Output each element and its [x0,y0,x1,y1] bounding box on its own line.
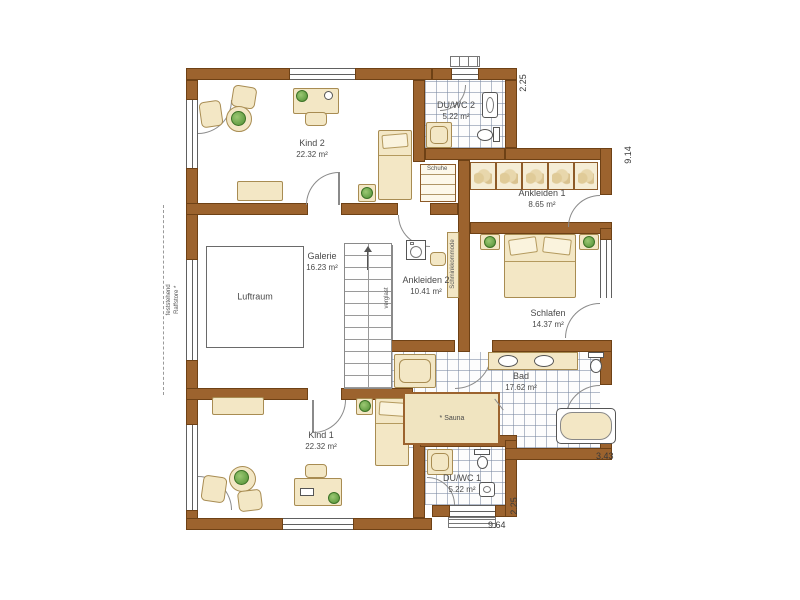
schminkkommode-label: Schminkkommode [450,234,456,294]
blanket-fold [379,155,411,156]
dimension-bottom-side: 2.25 [509,491,519,521]
basin-bowl [483,486,491,493]
dimension-top-right: 2.25 [518,68,528,98]
plant-icon [484,236,496,248]
pillow-icon [542,236,572,255]
room-label-galerie: Galerie16.23 m² [306,251,338,273]
wall-segment [355,68,432,80]
wardrobe-icon [470,162,496,190]
washing-machine-icon [406,240,426,260]
wall-segment [600,148,612,195]
wall-segment [413,80,425,162]
door-leaf [338,172,340,205]
room-label-ankleiden1: Ankleiden 18.65 m² [518,188,565,210]
room-label-ankleiden2: Ankleiden 210.41 m² [402,275,449,297]
wardrobe-icon [548,162,574,190]
raffstore-note: feststehend Raffstore * [166,245,182,355]
shower-tray [399,359,431,383]
dimension-right: 9.14 [623,140,633,170]
plant-icon [234,470,249,485]
room-label-luftraum: Luftraum [237,292,273,303]
stair-glazing-label: verglast [384,273,390,323]
shower-icon [427,449,453,475]
wall-segment [430,203,458,215]
window [290,68,355,80]
room-label-bad: Bad17.62 m² [505,371,537,393]
wm-drum [410,246,422,258]
wardrobe-icon [522,162,548,190]
plant-icon [361,187,373,199]
wm-knobs [410,242,414,245]
wall-segment [492,340,612,352]
window [600,240,612,298]
toilet-icon [477,129,493,141]
pillow-icon [508,236,538,256]
plant-icon [328,492,340,504]
door-swing [313,400,346,433]
basin-bowl [486,97,494,113]
sauna-label: * Sauna [440,415,465,423]
exterior-steps [450,56,480,67]
toilet-tank [588,352,604,358]
toilet-icon [477,456,488,469]
room-label-duwc2: DU/WC 25.22 m² [437,100,475,122]
wardrobe-icon [496,162,522,190]
wall-segment [432,68,452,80]
sideboard-icon [212,397,264,415]
washbasin-icon [482,92,498,118]
toilet-icon [590,359,602,373]
bathtub-icon [556,408,616,444]
balcony-door-glazing [186,100,198,168]
wall-segment [186,518,283,530]
balcony-door-glazing [186,425,198,510]
door-swing [568,195,600,227]
washbasin-icon [479,482,495,497]
washbasin-icon [498,355,518,367]
plant-icon [359,400,371,412]
keyboard-icon [300,488,314,496]
wall-segment [425,148,505,160]
window [452,68,478,80]
room-label-kind2: Kind 222.32 m² [296,138,328,160]
toilet-tank [493,127,500,142]
stair-center-line [368,244,369,388]
plant-icon [296,90,308,102]
dimension-bottom: 9.64 [488,520,506,530]
room-label-schlafen: Schlafen14.37 m² [530,308,565,330]
wall-segment [385,340,455,352]
desk-lamp-icon [324,91,333,100]
wall-segment [341,203,398,215]
roof-overhang-dashed-line [163,205,164,395]
bed-icon [378,130,412,200]
wall-segment [458,160,470,352]
wall-segment [432,505,450,517]
plant-icon [231,111,246,126]
shower-tray [431,453,449,471]
stair-railing [391,245,393,340]
pillow-icon [379,401,406,417]
room-label-kind1: Kind 122.32 m² [305,430,337,452]
wardrobe-icon [574,162,598,190]
wall-segment [478,68,517,80]
armchair-icon [198,100,223,129]
plant-icon [583,236,595,248]
washbasin-icon [534,355,554,367]
stair-arrow-head [364,246,372,252]
double-bed-icon [504,234,576,298]
wall-segment [353,518,432,530]
wall-segment [505,148,612,160]
wall-segment [186,80,198,100]
blanket-fold [505,261,575,262]
armchair-icon [200,474,227,503]
shower-icon [394,354,436,388]
shower-icon [426,122,452,148]
window [450,505,495,517]
wall-segment [600,228,612,240]
window [283,518,353,530]
room-label-duwc1: DU/WC 15.22 m² [443,473,481,495]
fixed-glazing [186,260,198,360]
armchair-icon [237,489,263,513]
shower-tray [430,126,448,144]
sideboard-icon [237,181,283,201]
tub-inner [560,412,612,440]
toilet-tank [474,449,490,455]
door-swing [306,172,339,205]
wall-segment [505,80,517,148]
pillow-icon [381,133,408,149]
door-swing [565,303,600,338]
vanity-stool-icon [430,252,446,266]
dimension-terrace: 3.43 [596,451,614,461]
door-leaf [312,400,314,432]
wall-segment [186,203,308,215]
desk-chair-icon [305,112,327,126]
floor-plan: feststehend Raffstore * [0,0,800,600]
schuhe-label: Schuhe [427,166,447,172]
wall-segment [186,68,290,80]
desk-chair-icon [305,464,327,478]
